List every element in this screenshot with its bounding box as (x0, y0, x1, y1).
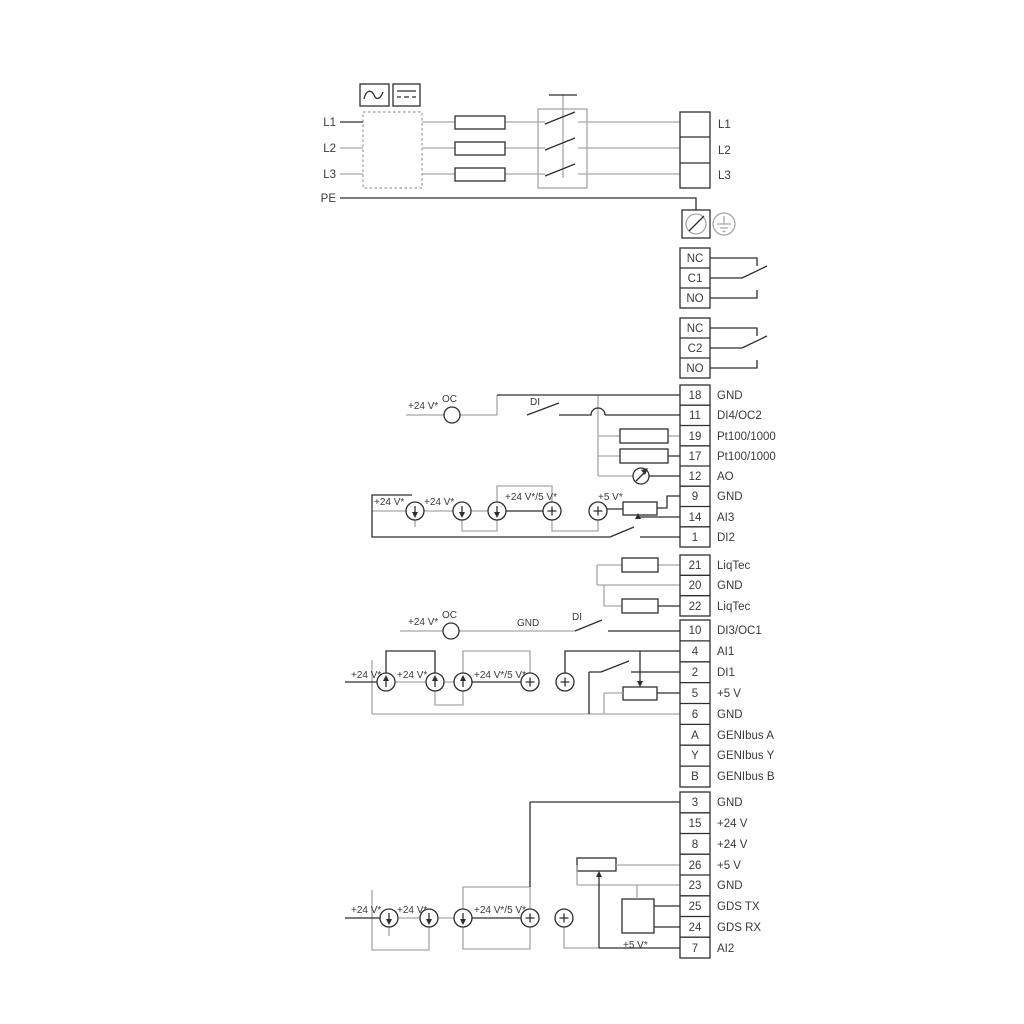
label-gnd: GND (517, 618, 539, 629)
relay-terminal: C2 (688, 343, 703, 355)
current-source-down-icon (454, 909, 472, 927)
mains-input-label: L2 (323, 143, 336, 155)
mains-section: L1 L2 L3 PE L1 L2 L3 (321, 84, 731, 210)
terminal-label: DI2 (717, 532, 735, 544)
label-24v: +24 V* (351, 670, 381, 681)
relay2-contact (710, 328, 767, 368)
control-section-e: +24 V* +24 V* +24 V*/5 V* +5 V* (345, 802, 680, 951)
terminal-number: 15 (689, 818, 702, 830)
label-5v: +5 V* (623, 940, 648, 951)
current-source-up-icon (454, 673, 472, 691)
potentiometer (577, 858, 616, 871)
terminal-label: DI3/OC1 (717, 625, 762, 637)
control-section-d: +24 V* +24 V* +24 V*/5 V* (345, 651, 680, 714)
label-24v: +24 V* (408, 617, 438, 628)
terminal-number: 20 (689, 580, 702, 592)
terminal-label: GND (717, 491, 743, 503)
terminal-number: 12 (689, 471, 702, 483)
relay-1: NC C1 NO (680, 248, 767, 308)
potentiometer (623, 687, 657, 700)
current-source-down-icon (488, 502, 506, 520)
wiper-arrow (637, 681, 643, 687)
label-di: DI (530, 397, 540, 408)
terminal-number: 9 (692, 491, 698, 503)
terminal-number: 11 (689, 410, 701, 422)
pe-ground-section (682, 210, 735, 238)
terminal-label: GENIbus A (717, 730, 774, 742)
terminal-number: 4 (692, 646, 699, 658)
mains-output-label: L2 (718, 145, 731, 157)
liqtec-section: 21 LiqTec 20 GND 22 LiqTec (597, 555, 750, 616)
relay-terminal: NC (687, 253, 704, 265)
terminal-label: AO (717, 471, 734, 483)
emc-filter-box (363, 112, 422, 188)
section-c-wires-dark (575, 620, 680, 631)
voltage-source-icon (556, 673, 574, 691)
voltage-source-icon (589, 502, 607, 520)
label-24v-5v: +24 V*/5 V* (474, 905, 526, 916)
terminal-label: GDS TX (717, 901, 760, 913)
terminal-label: GND (717, 709, 743, 721)
terminal-number: 22 (689, 601, 702, 613)
control-section-b: +24 V* +24 V* +24 V*/5 V* +5 V* (372, 486, 680, 537)
fuse-l1 (455, 116, 505, 129)
label-oc: OC (442, 610, 457, 621)
terminal-number: 23 (689, 880, 702, 892)
terminal-label: DI1 (717, 667, 735, 679)
terminal-label: GENIbus Y (717, 750, 775, 762)
terminal-number: 2 (692, 667, 698, 679)
control-section-a: +24 V* OC DI (406, 394, 680, 484)
label-oc: OC (442, 394, 457, 405)
open-collector-icon (443, 623, 459, 639)
terminal-number: 21 (689, 560, 702, 572)
label-24v-5v: +24 V*/5 V* (474, 670, 526, 681)
terminal-label: AI1 (717, 646, 734, 658)
terminal-label: GDS RX (717, 922, 761, 934)
terminal-number: Y (691, 750, 699, 762)
terminal-strip-io2: 10 DI3/OC1 4 AI1 2 DI1 5 +5 V 6 GND A GE… (680, 620, 775, 787)
terminal-label: LiqTec (717, 601, 750, 613)
label-24v: +24 V* (397, 905, 427, 916)
terminal-number: 24 (689, 922, 702, 934)
terminal-label: GND (717, 880, 743, 892)
terminal-number: 19 (689, 431, 702, 443)
current-source-down-icon (380, 909, 398, 927)
relay-terminal: NO (686, 363, 703, 375)
relay-terminal: NO (686, 293, 703, 305)
terminal-label: AI3 (717, 512, 734, 524)
terminal-number: 14 (689, 512, 702, 524)
terminal-label: Pt100/1000 (717, 451, 776, 463)
voltage-source-icon (543, 502, 561, 520)
current-source-up-icon (426, 673, 444, 691)
terminal-number: B (691, 771, 699, 783)
wiring-diagram-canvas: L1 L2 L3 PE L1 L2 L3 NC C1 NO NC C2 NO (0, 0, 1024, 1024)
terminal-number: 6 (692, 709, 698, 721)
terminal-number: A (691, 730, 699, 742)
fuse-l2 (455, 142, 505, 155)
relay-2: NC C2 NO (680, 318, 767, 378)
terminal-number: 3 (692, 797, 698, 809)
mains-terminal-block (680, 112, 710, 188)
terminal-number: 26 (689, 860, 702, 872)
terminal-number: 8 (692, 839, 698, 851)
terminal-number: 17 (689, 451, 702, 463)
potentiometer (623, 502, 657, 515)
terminal-label: +5 V (717, 860, 741, 872)
label-24v: +24 V* (424, 497, 454, 508)
terminal-strip-io3: 3 GND 15 +24 V 8 +24 V 26 +5 V 23 GND 25… (680, 792, 761, 958)
terminal-label: +5 V (717, 688, 741, 700)
terminal-label: +24 V (717, 818, 748, 830)
liqtec-resistor (622, 599, 658, 613)
terminal-label: GND (717, 580, 743, 592)
mains-output-label: L3 (718, 170, 731, 182)
relay-terminal: C1 (688, 273, 703, 285)
liqtec-resistor (622, 558, 658, 572)
voltage-source-icon (555, 909, 573, 927)
gds-sensor-box (622, 899, 654, 933)
wiring-diagram-page: L1 L2 L3 PE L1 L2 L3 NC C1 NO NC C2 NO (0, 0, 1024, 1024)
label-24v: +24 V* (397, 670, 427, 681)
relay1-contact (710, 258, 767, 298)
terminal-number: 1 (692, 532, 698, 544)
label-24v: +24 V* (374, 497, 404, 508)
mains-output-label: L1 (718, 119, 731, 131)
terminal-number: 25 (689, 901, 702, 913)
mains-input-label: PE (321, 193, 337, 205)
wiper-arrow (596, 871, 602, 877)
terminal-strip-io1: 18 GND 11 DI4/OC2 19 Pt100/1000 17 Pt100… (680, 385, 776, 547)
terminal-label: +24 V (717, 839, 748, 851)
terminal-label: LiqTec (717, 560, 750, 572)
pt100-resistor (620, 429, 668, 443)
control-section-c: +24 V* OC GND DI (400, 610, 680, 639)
current-source-down-icon (406, 502, 424, 520)
terminal-label: GENIbus B (717, 771, 775, 783)
terminal-label: AI2 (717, 943, 734, 955)
mains-input-label: L1 (323, 117, 336, 129)
terminal-label: GND (717, 390, 743, 402)
relay-terminal: NC (687, 323, 704, 335)
current-source-down-icon (453, 502, 471, 520)
dc-filter-icon (393, 84, 420, 106)
mains-wires-gray (340, 95, 680, 178)
earth-symbol (717, 216, 731, 232)
terminal-number: 5 (692, 688, 698, 700)
mains-input-label: L3 (323, 169, 336, 181)
terminal-label: GND (717, 797, 743, 809)
terminal-label: Pt100/1000 (717, 431, 776, 443)
label-24v-5v: +24 V*/5 V* (505, 492, 557, 503)
label-24v: +24 V* (408, 401, 438, 412)
open-collector-icon (444, 407, 460, 423)
terminal-number: 7 (692, 943, 698, 955)
pt100-resistor (620, 449, 668, 463)
fuse-l3 (455, 168, 505, 181)
label-di: DI (572, 612, 582, 623)
terminal-label: DI4/OC2 (717, 410, 762, 422)
label-24v: +24 V* (351, 905, 381, 916)
label-5v: +5 V* (598, 492, 623, 503)
terminal-number: 18 (689, 390, 702, 402)
terminal-number: 10 (689, 625, 702, 637)
